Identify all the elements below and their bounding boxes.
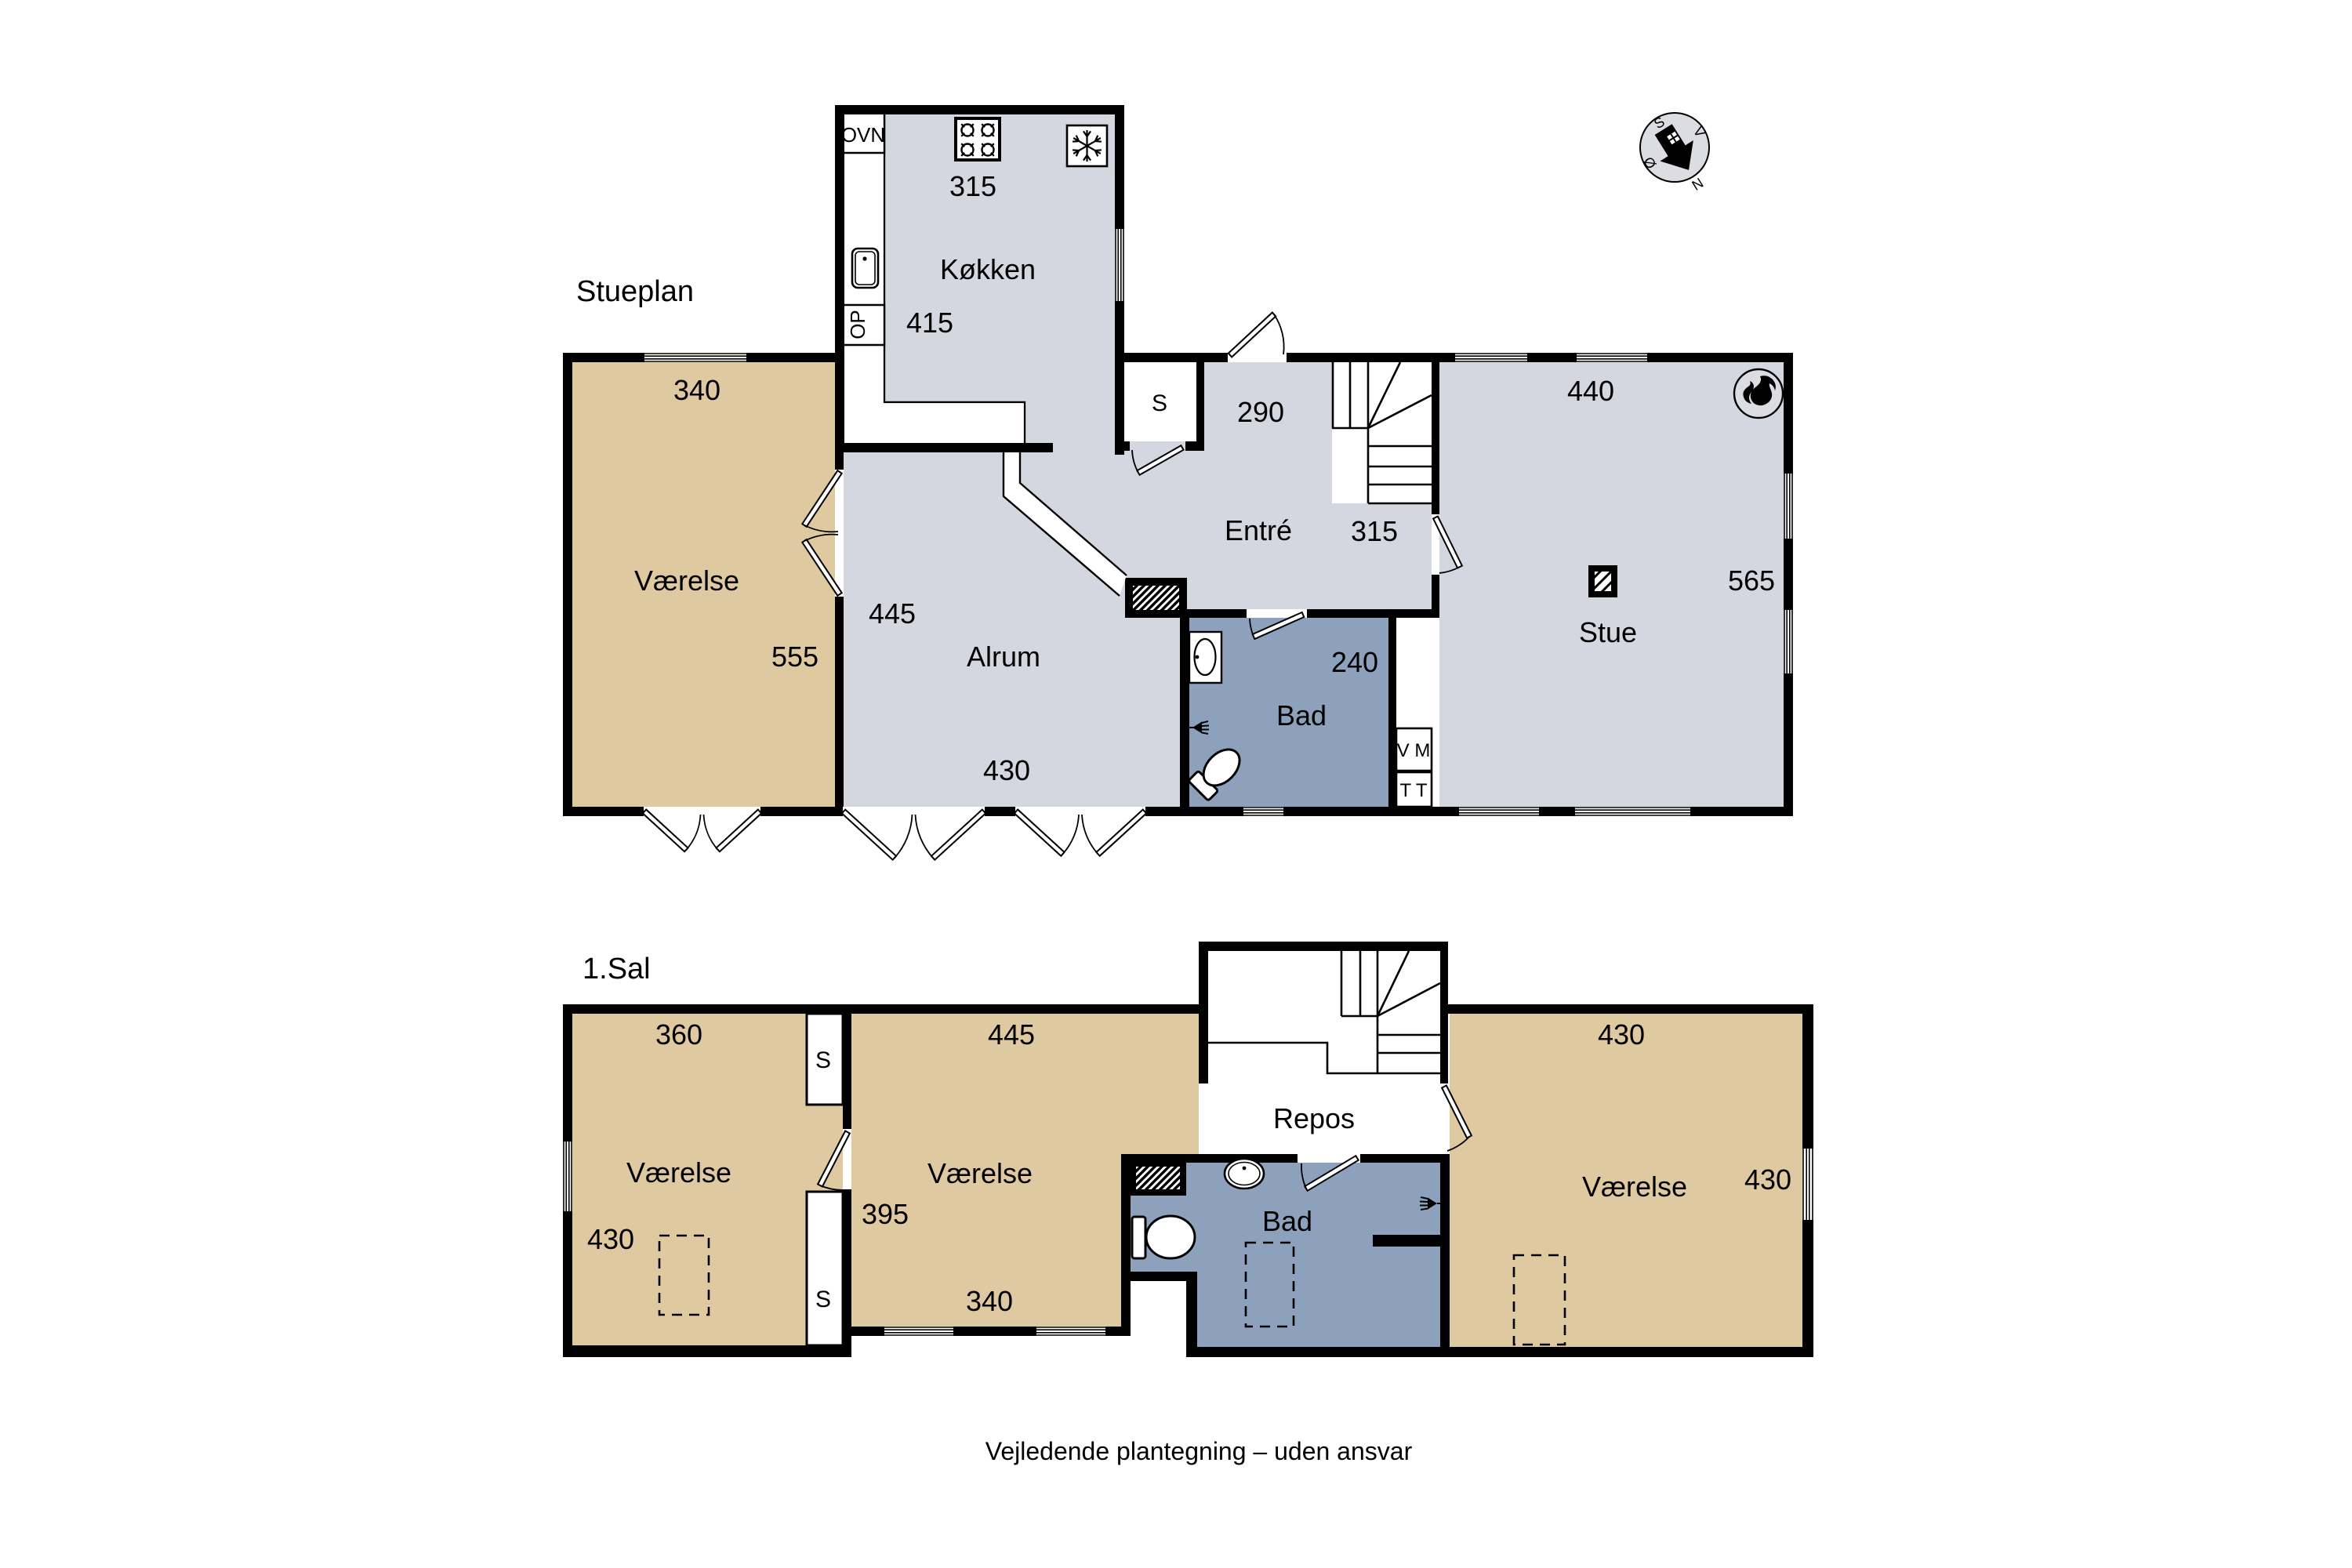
svg-text:Værelse: Værelse [927,1157,1033,1189]
svg-text:Værelse: Værelse [634,564,739,597]
svg-text:Vejledende plantegning – uden: Vejledende plantegning – uden ansvar [985,1437,1413,1465]
svg-text:S: S [815,1047,831,1073]
svg-text:440: 440 [1567,375,1614,407]
svg-text:1.Sal: 1.Sal [583,953,651,985]
svg-text:360: 360 [655,1018,702,1051]
svg-text:430: 430 [1744,1163,1791,1196]
svg-text:315: 315 [949,170,996,202]
svg-text:Stueplan: Stueplan [576,275,694,308]
svg-text:315: 315 [1351,515,1398,547]
svg-text:Alrum: Alrum [967,641,1040,673]
svg-text:290: 290 [1237,396,1284,428]
svg-text:Bad: Bad [1276,699,1327,731]
svg-text:Repos: Repos [1273,1102,1355,1134]
svg-text:Køkken: Køkken [940,253,1036,285]
svg-text:S: S [815,1287,831,1312]
svg-text:340: 340 [966,1285,1013,1317]
svg-text:340: 340 [673,374,720,406]
svg-text:445: 445 [988,1018,1035,1051]
svg-text:430: 430 [587,1223,634,1255]
svg-text:Værelse: Værelse [1582,1171,1687,1203]
svg-text:Værelse: Værelse [626,1156,731,1189]
svg-text:Stue: Stue [1579,616,1637,648]
svg-text:S: S [1152,390,1167,416]
svg-text:430: 430 [1598,1018,1645,1051]
svg-text:T T: T T [1399,780,1427,801]
svg-text:Bad: Bad [1262,1205,1312,1237]
svg-text:V M: V M [1397,740,1431,761]
svg-text:240: 240 [1331,646,1378,678]
svg-text:430: 430 [983,754,1030,786]
svg-text:565: 565 [1728,564,1775,597]
svg-text:415: 415 [906,307,953,339]
svg-text:395: 395 [862,1198,909,1230]
svg-text:555: 555 [771,641,818,673]
svg-text:445: 445 [869,597,916,630]
svg-text:OVN: OVN [841,123,885,147]
svg-text:OP: OP [846,310,869,339]
svg-text:Entré: Entré [1225,514,1292,546]
